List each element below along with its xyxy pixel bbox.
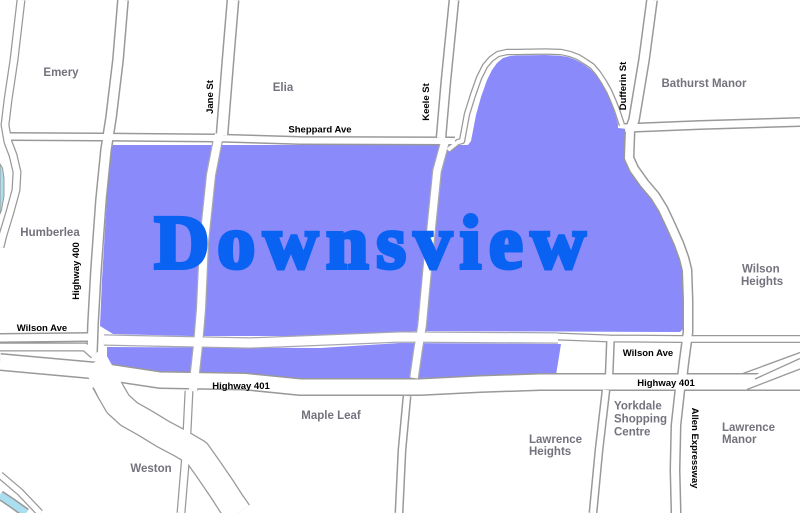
svg-text:Heights: Heights — [529, 446, 571, 458]
svg-text:Downsview: Downsview — [154, 201, 593, 285]
svg-text:Highway 401: Highway 401 — [212, 381, 270, 392]
svg-text:Wilson Ave: Wilson Ave — [623, 348, 673, 359]
svg-text:Keele St: Keele St — [421, 82, 432, 120]
svg-text:Weston: Weston — [130, 463, 171, 475]
svg-text:Dufferin St: Dufferin St — [618, 61, 629, 110]
svg-text:Lawrence: Lawrence — [722, 422, 775, 434]
svg-text:Wilson Ave: Wilson Ave — [17, 323, 67, 334]
svg-text:Humberlea: Humberlea — [20, 227, 80, 239]
svg-text:Manor: Manor — [722, 434, 757, 446]
svg-text:Maple Leaf: Maple Leaf — [301, 410, 361, 422]
svg-text:Yorkdale: Yorkdale — [614, 401, 662, 413]
svg-text:Highway 400: Highway 400 — [71, 242, 82, 300]
svg-text:Lawrence: Lawrence — [529, 434, 582, 446]
svg-text:Bathurst Manor: Bathurst Manor — [662, 78, 748, 90]
svg-text:Emery: Emery — [43, 67, 79, 79]
svg-text:Jane St: Jane St — [205, 79, 216, 114]
svg-text:Allen Expressway: Allen Expressway — [689, 408, 700, 490]
svg-text:Shopping: Shopping — [614, 414, 667, 426]
svg-text:Elia: Elia — [273, 82, 294, 94]
svg-text:Sheppard Ave: Sheppard Ave — [288, 125, 351, 136]
svg-text:Centre: Centre — [614, 427, 650, 439]
svg-text:Heights: Heights — [741, 276, 783, 288]
svg-text:Wilson: Wilson — [742, 264, 780, 276]
svg-text:Highway 401: Highway 401 — [637, 378, 695, 389]
